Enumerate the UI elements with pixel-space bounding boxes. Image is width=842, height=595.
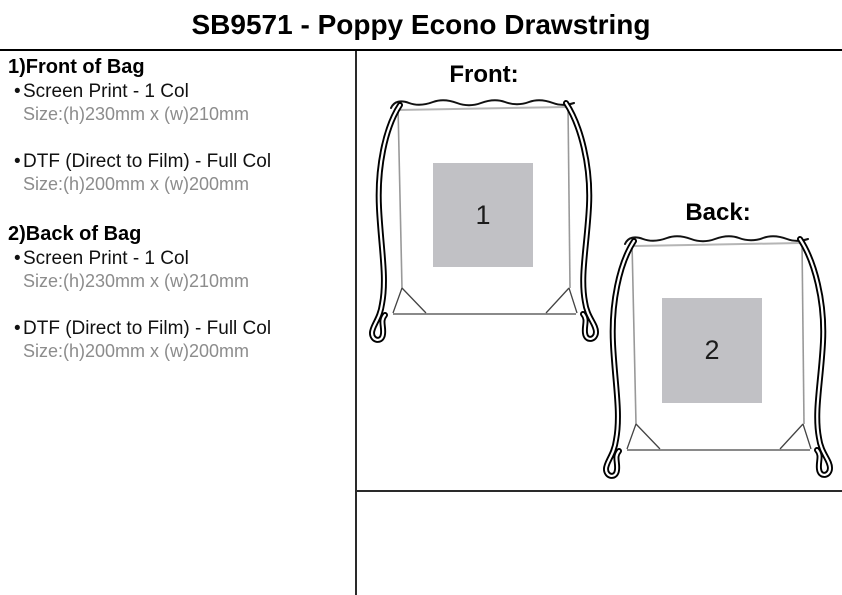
spec-item-text: Screen Print - 1 Col [23, 247, 189, 270]
spec-item-label: • DTF (Direct to Film) - Full Col [14, 150, 348, 173]
spec-item-text: Screen Print - 1 Col [23, 80, 189, 103]
spec-item: • DTF (Direct to Film) - Full Col Size:(… [8, 150, 348, 196]
spec-item-text: DTF (Direct to Film) - Full Col [23, 317, 271, 340]
front-bag-figure: Front: 1 [368, 62, 600, 348]
title-divider [0, 49, 842, 51]
spec-item: • Screen Print - 1 Col Size:(h)230mm x (… [8, 80, 348, 126]
bottom-horizontal-divider [356, 490, 842, 492]
spec-item-label: • Screen Print - 1 Col [14, 80, 348, 103]
spec-item: • Screen Print - 1 Col Size:(h)230mm x (… [8, 247, 348, 293]
spec-section-front: 1)Front of Bag • Screen Print - 1 Col Si… [8, 55, 348, 196]
back-print-area: 2 [662, 298, 762, 403]
bullet-marker: • [14, 150, 23, 173]
bullet-marker: • [14, 80, 23, 103]
bullet-marker: • [14, 317, 23, 340]
page-title: SB9571 - Poppy Econo Drawstring [0, 9, 842, 41]
front-bag-caption: Front: [368, 62, 600, 88]
spec-section-back: 2)Back of Bag • Screen Print - 1 Col Siz… [8, 222, 348, 363]
spec-item-size: Size:(h)230mm x (w)210mm [14, 103, 348, 126]
back-bag-caption: Back: [602, 200, 834, 226]
spec-item: • DTF (Direct to Film) - Full Col Size:(… [8, 317, 348, 363]
spec-item-size: Size:(h)200mm x (w)200mm [14, 340, 348, 363]
spec-item-label: • DTF (Direct to Film) - Full Col [14, 317, 348, 340]
bullet-marker: • [14, 247, 23, 270]
back-bag-figure: Back: 2 [602, 200, 834, 486]
print-specs-panel: 1)Front of Bag • Screen Print - 1 Col Si… [8, 55, 348, 363]
spec-item-text: DTF (Direct to Film) - Full Col [23, 150, 271, 173]
spec-item-size: Size:(h)200mm x (w)200mm [14, 173, 348, 196]
spec-heading-front: 1)Front of Bag [8, 55, 348, 79]
spec-item-size: Size:(h)230mm x (w)210mm [14, 270, 348, 293]
spec-sheet-page: SB9571 - Poppy Econo Drawstring 1)Front … [0, 0, 842, 595]
spec-item-label: • Screen Print - 1 Col [14, 247, 348, 270]
vertical-divider [355, 51, 357, 595]
spec-heading-back: 2)Back of Bag [8, 222, 348, 246]
front-print-area: 1 [433, 163, 533, 267]
